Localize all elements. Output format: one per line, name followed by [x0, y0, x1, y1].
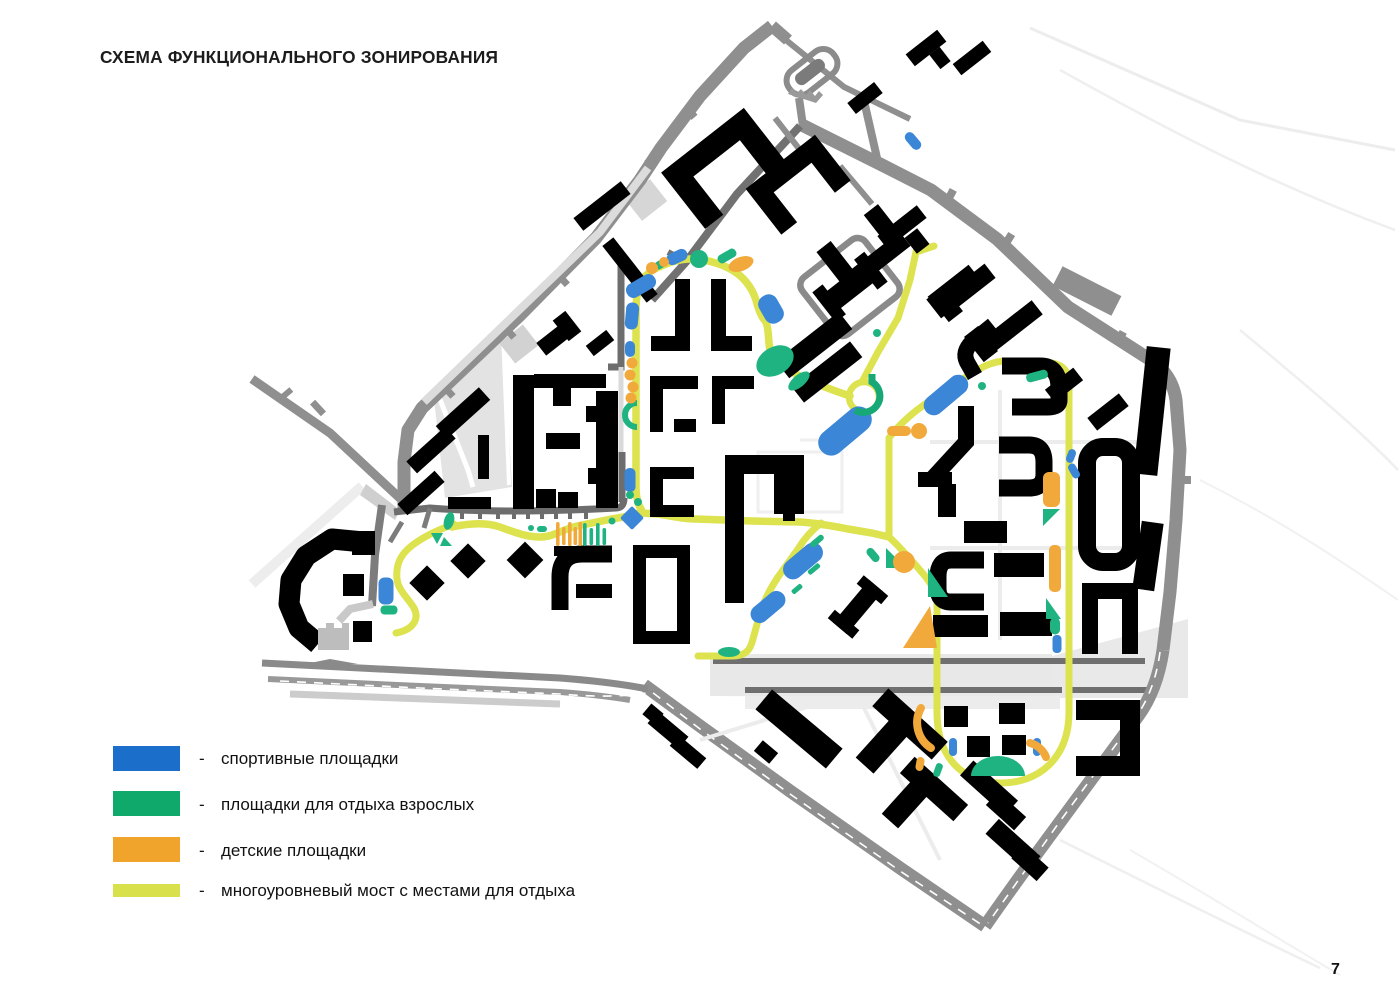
svg-text:многоуровневый мост с местами: многоуровневый мост с местами для отдыха	[221, 881, 576, 900]
svg-text:детские площадки: детские площадки	[221, 841, 366, 860]
svg-text:-: -	[199, 795, 205, 814]
svg-text:-: -	[199, 841, 205, 860]
svg-text:7: 7	[1331, 961, 1340, 978]
svg-text:СХЕМА ФУНКЦИОНАЛЬНОГО ЗОНИРОВА: СХЕМА ФУНКЦИОНАЛЬНОГО ЗОНИРОВАНИЯ	[100, 47, 498, 67]
svg-text:спортивные площадки: спортивные площадки	[221, 749, 398, 768]
svg-text:-: -	[199, 881, 205, 900]
svg-text:площадки для отдыха взрослых: площадки для отдыха взрослых	[221, 795, 475, 814]
svg-text:-: -	[199, 749, 205, 768]
